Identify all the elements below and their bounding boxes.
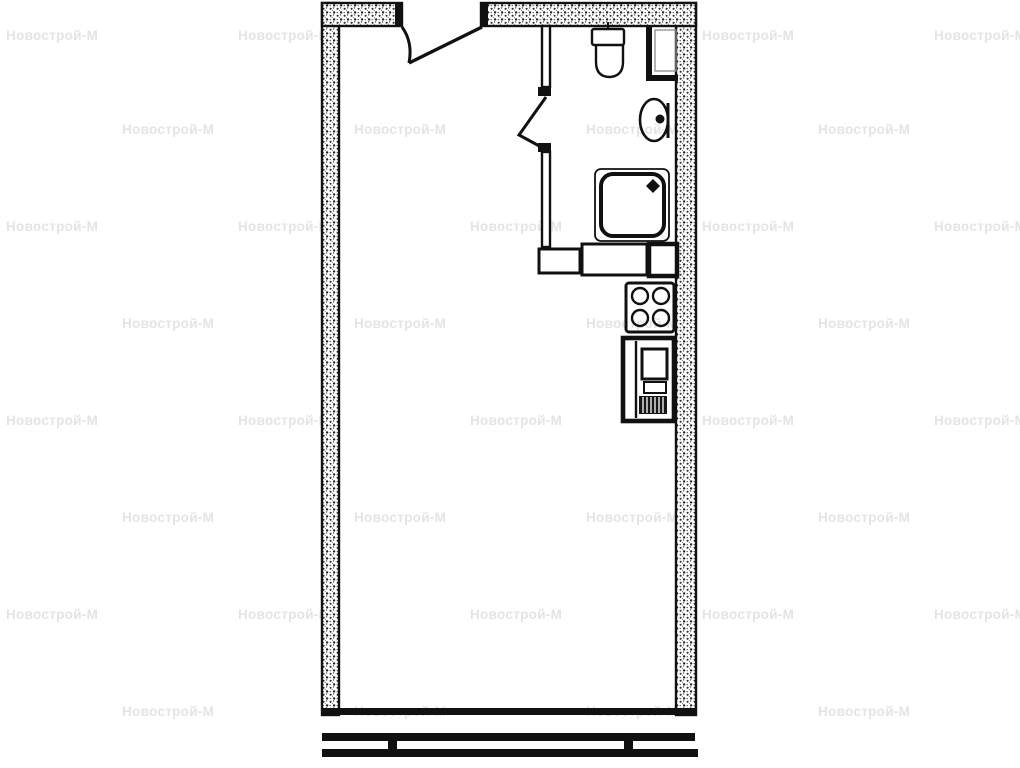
stove xyxy=(626,283,674,332)
floorplan-drawing xyxy=(0,0,1020,768)
entrance-door-arc xyxy=(402,27,410,63)
burner xyxy=(653,288,669,304)
entrance-door-leaf xyxy=(409,27,482,63)
window-mullion-right xyxy=(624,733,633,757)
shower-tray xyxy=(595,169,669,241)
burner xyxy=(632,310,648,326)
toilet-tank xyxy=(592,29,624,45)
kitchen-sink-unit xyxy=(623,338,674,421)
cabinet-drawer xyxy=(644,382,666,393)
burner xyxy=(632,288,648,304)
right-wall xyxy=(676,3,696,715)
partition-block-1 xyxy=(539,249,580,273)
bathroom-door xyxy=(519,97,546,148)
floorplan-page: Новострой-МНовострой-МНовострой-МНовостр… xyxy=(0,0,1020,768)
left-wall xyxy=(322,3,339,715)
entrance-door-jambs xyxy=(395,3,488,27)
bathroom-partition-wall xyxy=(542,26,550,247)
window-line-inner xyxy=(322,749,698,757)
shower-drain xyxy=(646,179,660,193)
washbasin xyxy=(640,99,668,141)
burner xyxy=(653,310,669,326)
top-wall-left xyxy=(322,3,402,26)
window-mullion-left xyxy=(388,733,397,757)
top-wall-right xyxy=(481,3,696,26)
window-line-outer xyxy=(322,733,695,741)
toilet-bowl xyxy=(596,45,623,77)
washbasin-drain xyxy=(656,115,665,124)
exterior-walls xyxy=(322,3,696,715)
entrance-door xyxy=(402,27,482,63)
toilet xyxy=(592,22,624,77)
shower-frame xyxy=(595,169,669,241)
partition-block-3 xyxy=(649,244,677,276)
cabinet-basin xyxy=(642,349,667,379)
bottom-wall xyxy=(322,708,697,715)
cabinet-hatch xyxy=(639,396,667,414)
panoramic-window xyxy=(322,733,698,757)
ventilation-shaft xyxy=(649,26,678,78)
partition-block-2 xyxy=(582,244,647,275)
kitchen-partition xyxy=(539,244,677,276)
